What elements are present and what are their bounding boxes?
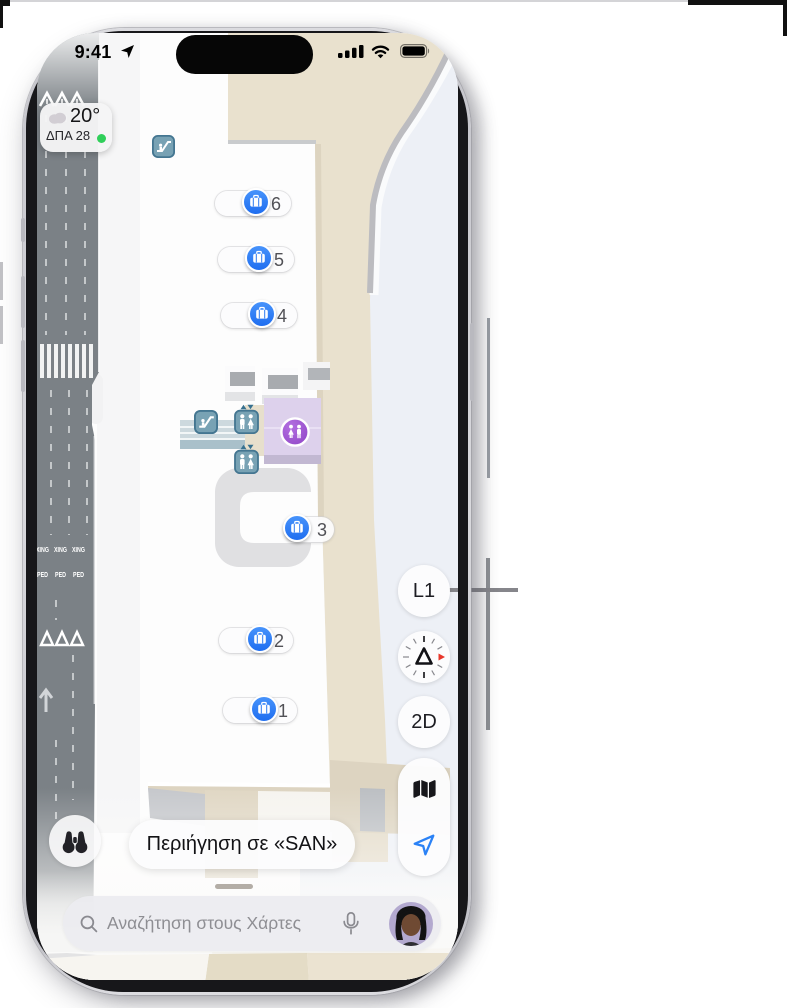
svg-text:XING: XING xyxy=(37,547,49,554)
svg-text:PED: PED xyxy=(73,572,84,579)
svg-text:XING: XING xyxy=(54,547,67,554)
svg-text:XING: XING xyxy=(72,547,85,554)
svg-text:PED: PED xyxy=(55,572,66,579)
svg-text:PED: PED xyxy=(37,572,48,579)
